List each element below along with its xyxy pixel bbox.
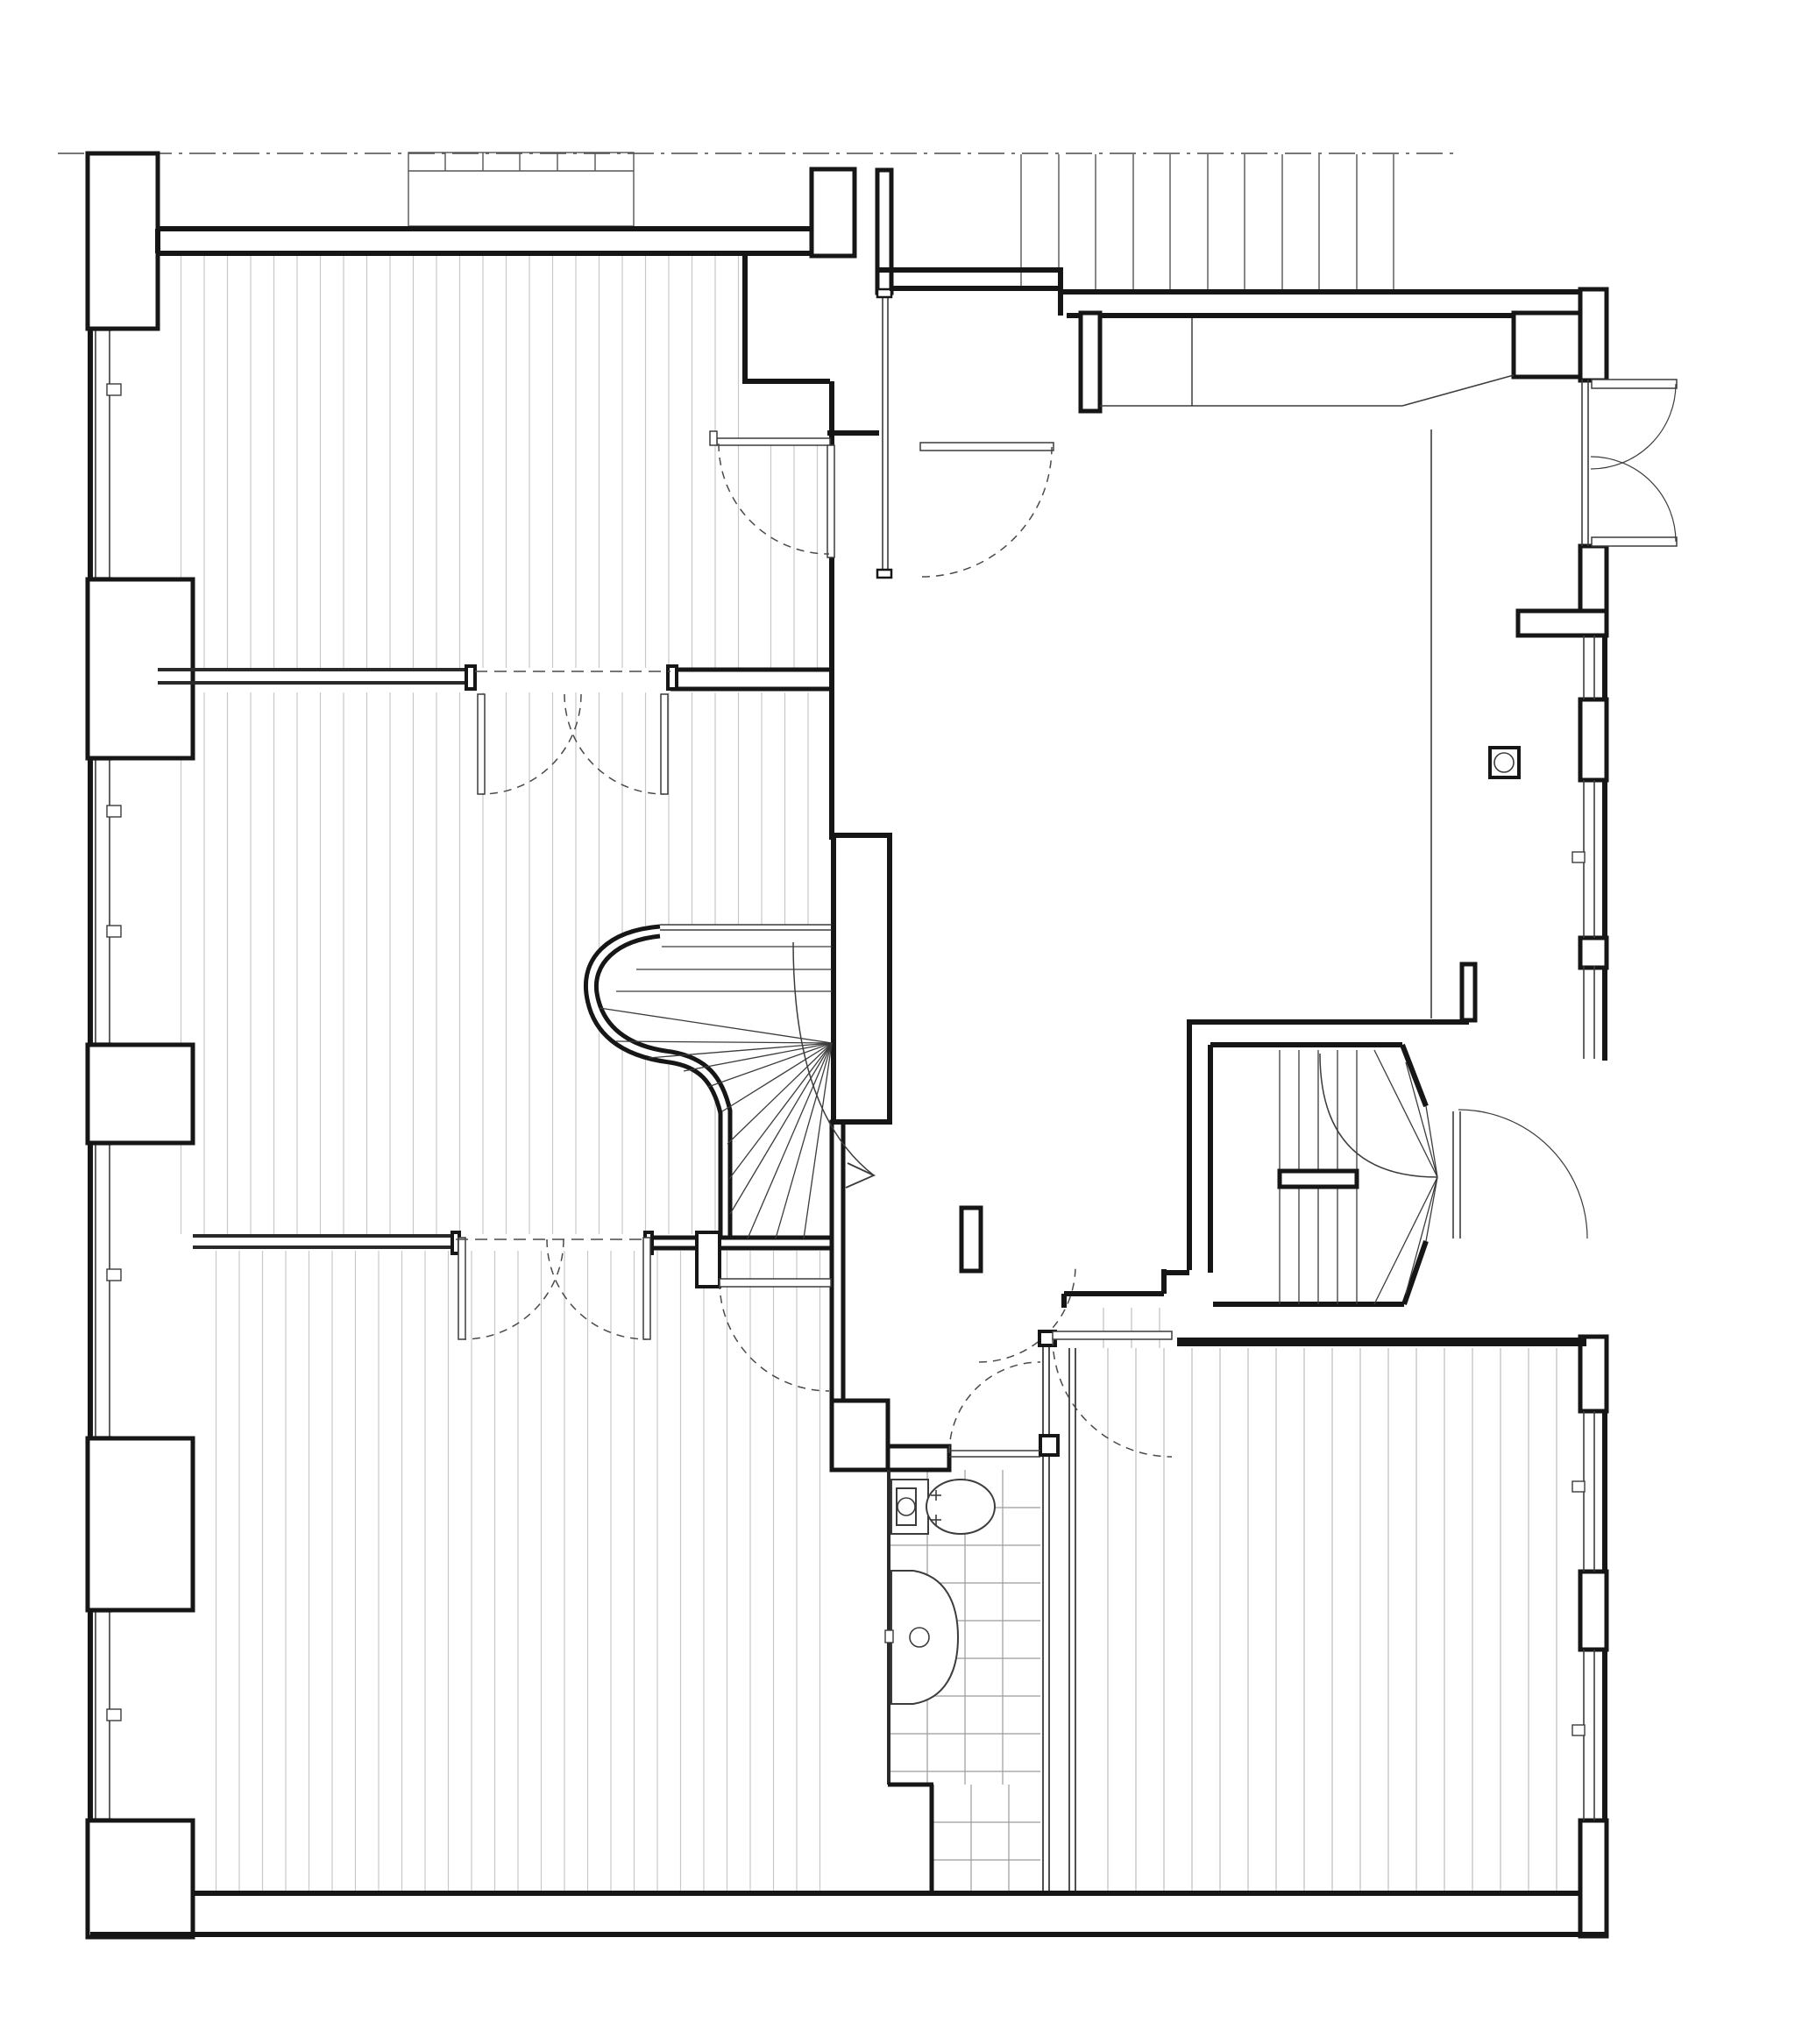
right-stair-handrail bbox=[1280, 1171, 1357, 1187]
anteroom-wall-stub bbox=[961, 1208, 981, 1271]
chimney-flue bbox=[1494, 753, 1514, 772]
top-wall-shaft bbox=[812, 169, 855, 256]
curved-stair-pier bbox=[834, 835, 890, 1122]
lobby-wall-block bbox=[877, 170, 891, 293]
lobby-door-leaf bbox=[920, 443, 1054, 451]
floor-plan-drawing bbox=[0, 0, 1795, 2044]
sink-faucet bbox=[910, 1628, 929, 1647]
floor-plan-page bbox=[0, 0, 1795, 2044]
toilet-bowl bbox=[926, 1480, 995, 1534]
toilet-flush-button bbox=[897, 1498, 915, 1515]
hall-west-wall bbox=[832, 1122, 843, 1407]
hall-room3-door-leaf bbox=[720, 1279, 831, 1287]
sink-tap-mark bbox=[885, 1630, 893, 1643]
room4-door-leaf bbox=[1053, 1331, 1172, 1339]
